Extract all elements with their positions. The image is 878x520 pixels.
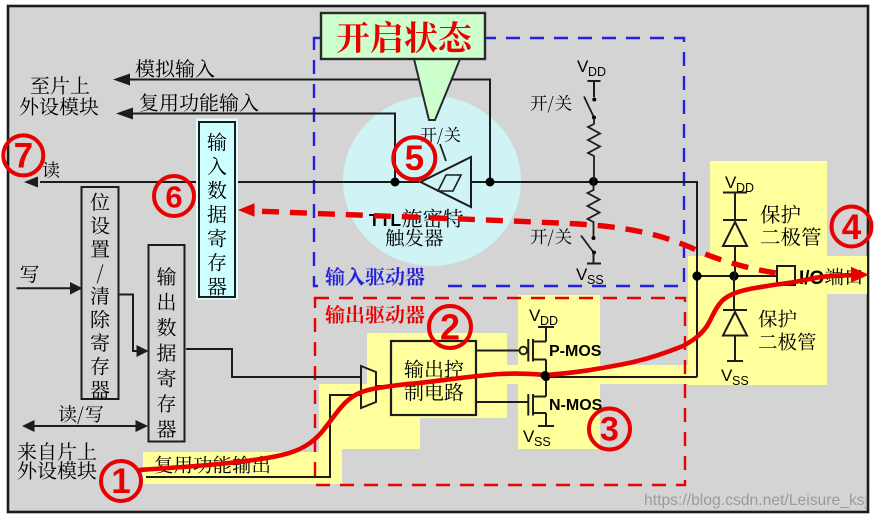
svg-text:4: 4	[842, 208, 862, 247]
svg-text:2: 2	[440, 307, 460, 348]
svg-text:SS: SS	[587, 273, 604, 287]
svg-text:TTL: TTL	[369, 210, 401, 230]
svg-text:SS: SS	[534, 435, 551, 449]
svg-text:7: 7	[14, 137, 33, 176]
svg-text:DD: DD	[540, 314, 558, 328]
svg-text:SS: SS	[732, 374, 749, 388]
svg-text:https://blog.csdn.net/Leisure_: https://blog.csdn.net/Leisure_ksj	[644, 492, 868, 509]
svg-text:DD: DD	[588, 65, 606, 79]
svg-text:5: 5	[405, 139, 424, 178]
svg-text:6: 6	[165, 180, 182, 215]
svg-text:P-MOS: P-MOS	[549, 343, 602, 360]
svg-text:1: 1	[111, 462, 130, 501]
svg-text:3: 3	[600, 411, 619, 449]
svg-text:N-MOS: N-MOS	[549, 397, 603, 414]
